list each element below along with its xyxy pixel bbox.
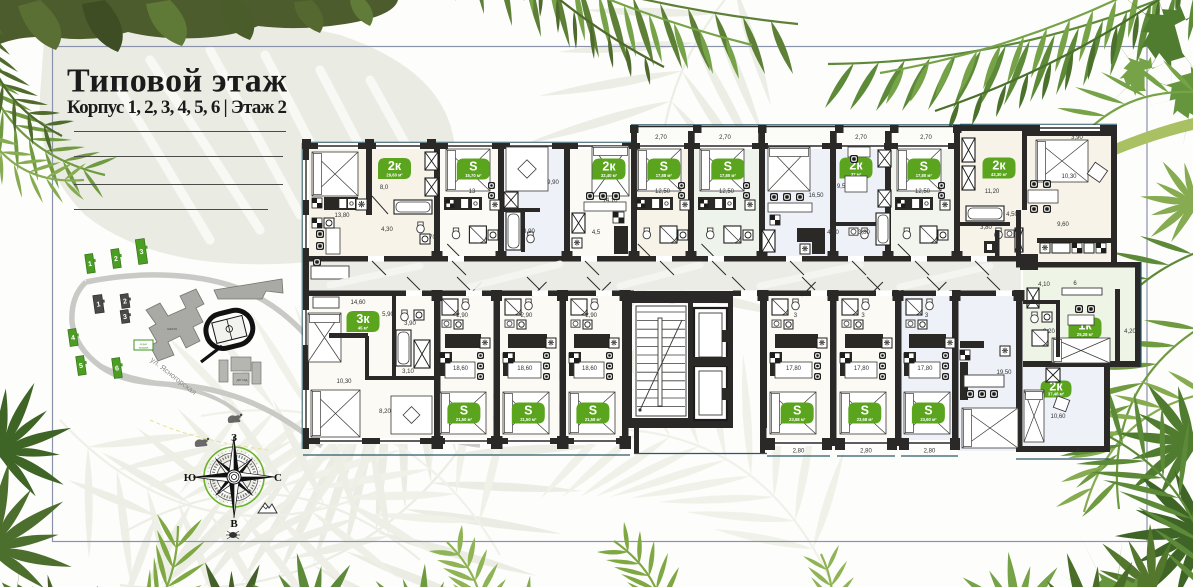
svg-text:S: S	[724, 160, 732, 174]
svg-text:3к: 3к	[356, 312, 370, 326]
svg-text:дет.сад: дет.сад	[237, 378, 248, 382]
svg-text:Ю: Ю	[184, 472, 196, 484]
svg-text:11,20: 11,20	[985, 189, 1000, 195]
svg-text:43,30 м²: 43,30 м²	[991, 172, 1008, 177]
svg-text:9,5: 9,5	[837, 184, 846, 190]
svg-text:2,70: 2,70	[655, 135, 667, 141]
svg-text:12,50: 12,50	[655, 189, 671, 195]
svg-text:2,70: 2,70	[855, 135, 867, 141]
svg-text:❋: ❋	[682, 200, 689, 209]
svg-text:13: 13	[469, 189, 476, 195]
svg-text:13,80: 13,80	[334, 213, 350, 219]
svg-text:25,28 м²: 25,28 м²	[1077, 332, 1094, 337]
svg-text:18,60: 18,60	[453, 366, 469, 372]
svg-text:17,80: 17,80	[854, 366, 870, 372]
svg-text:С: С	[274, 472, 282, 484]
svg-text:4,50: 4,50	[827, 230, 839, 236]
svg-text:4,20: 4,20	[1124, 329, 1136, 335]
svg-text:❋: ❋	[884, 338, 891, 347]
svg-text:17,80: 17,80	[917, 366, 933, 372]
svg-text:3,10: 3,10	[402, 369, 414, 375]
svg-text:продаж: продаж	[139, 346, 149, 350]
svg-text:❋: ❋	[747, 200, 754, 209]
svg-text:4,5: 4,5	[592, 230, 601, 236]
svg-text:школа: школа	[167, 327, 177, 331]
svg-text:❋: ❋	[1002, 346, 1009, 355]
svg-text:S: S	[793, 404, 801, 418]
svg-text:2,80: 2,80	[924, 449, 936, 455]
svg-text:4,10: 4,10	[1038, 282, 1050, 288]
svg-text:3,90: 3,90	[523, 229, 535, 235]
svg-text:3,80: 3,80	[858, 230, 870, 236]
svg-text:8,20: 8,20	[379, 409, 391, 415]
svg-text:З: З	[231, 432, 237, 444]
svg-text:37,48 м²: 37,48 м²	[1048, 392, 1065, 397]
svg-text:14,60: 14,60	[350, 300, 366, 306]
svg-text:2к: 2к	[602, 160, 616, 174]
svg-text:2,80: 2,80	[860, 449, 872, 455]
svg-text:2к: 2к	[388, 159, 402, 173]
svg-text:❋: ❋	[482, 338, 489, 347]
svg-text:❋: ❋	[802, 244, 809, 253]
svg-text:В: В	[230, 518, 238, 530]
svg-text:23,68 м²: 23,68 м²	[789, 417, 806, 422]
svg-text:S: S	[460, 404, 468, 418]
svg-text:10,60: 10,60	[1050, 414, 1066, 420]
svg-text:17,80 м²: 17,80 м²	[916, 173, 933, 178]
svg-text:23,68 м²: 23,68 м²	[857, 417, 874, 422]
svg-text:16,50: 16,50	[808, 193, 824, 199]
svg-text:❋: ❋	[574, 238, 581, 247]
svg-text:8,0: 8,0	[380, 185, 389, 191]
svg-text:2,90: 2,90	[521, 313, 533, 319]
svg-text:21,50 м²: 21,50 м²	[520, 417, 537, 422]
svg-text:12,50: 12,50	[719, 189, 735, 195]
svg-text:15,70 м²: 15,70 м²	[465, 173, 482, 178]
svg-text:12,50: 12,50	[915, 189, 931, 195]
svg-text:2,70: 2,70	[719, 135, 731, 141]
svg-text:Корпус 1, 2, 3, 4, 5, 6 | Этаж: Корпус 1, 2, 3, 4, 5, 6 | Этаж 2	[67, 97, 287, 118]
svg-text:4,30: 4,30	[381, 227, 393, 233]
svg-text:17,80 м²: 17,80 м²	[720, 173, 737, 178]
svg-text:S: S	[589, 404, 597, 418]
svg-text:S: S	[924, 404, 932, 418]
svg-text:21,50 м²: 21,50 м²	[456, 417, 473, 422]
svg-text:❋: ❋	[819, 338, 826, 347]
svg-text:❋: ❋	[492, 200, 499, 209]
svg-text:10,30: 10,30	[1061, 174, 1077, 180]
svg-text:2,70: 2,70	[920, 135, 932, 141]
svg-text:❋: ❋	[611, 338, 618, 347]
svg-text:❋: ❋	[947, 338, 954, 347]
svg-text:3,90: 3,90	[404, 321, 416, 327]
svg-text:❋: ❋	[358, 199, 366, 209]
svg-text:9,90: 9,90	[547, 180, 559, 186]
svg-text:21,58 м²: 21,58 м²	[585, 417, 602, 422]
svg-text:S: S	[920, 160, 928, 174]
svg-text:32,40 м²: 32,40 м²	[601, 173, 618, 178]
svg-text:18,60: 18,60	[517, 366, 533, 372]
svg-text:23,60 м²: 23,60 м²	[920, 417, 937, 422]
svg-text:2,80: 2,80	[793, 449, 805, 455]
svg-text:S: S	[660, 160, 668, 174]
svg-text:S: S	[469, 160, 477, 174]
svg-text:❋: ❋	[1042, 243, 1049, 252]
svg-text:10,30: 10,30	[336, 379, 352, 385]
svg-text:S: S	[861, 404, 869, 418]
svg-text:45 м²: 45 м²	[358, 326, 369, 331]
svg-text:17,80: 17,80	[786, 366, 802, 372]
svg-text:❋: ❋	[942, 200, 949, 209]
svg-text:2,90: 2,90	[585, 313, 597, 319]
svg-text:S: S	[524, 404, 532, 418]
svg-text:Типовой этаж: Типовой этаж	[67, 63, 287, 100]
svg-text:❋: ❋	[548, 338, 555, 347]
svg-text:18,60: 18,60	[582, 366, 598, 372]
svg-text:2,90: 2,90	[456, 313, 468, 319]
svg-text:17,88 м²: 17,88 м²	[656, 173, 673, 178]
svg-text:29,60 м²: 29,60 м²	[386, 173, 403, 178]
svg-text:2к: 2к	[992, 159, 1006, 173]
svg-text:9,60: 9,60	[1057, 222, 1069, 228]
